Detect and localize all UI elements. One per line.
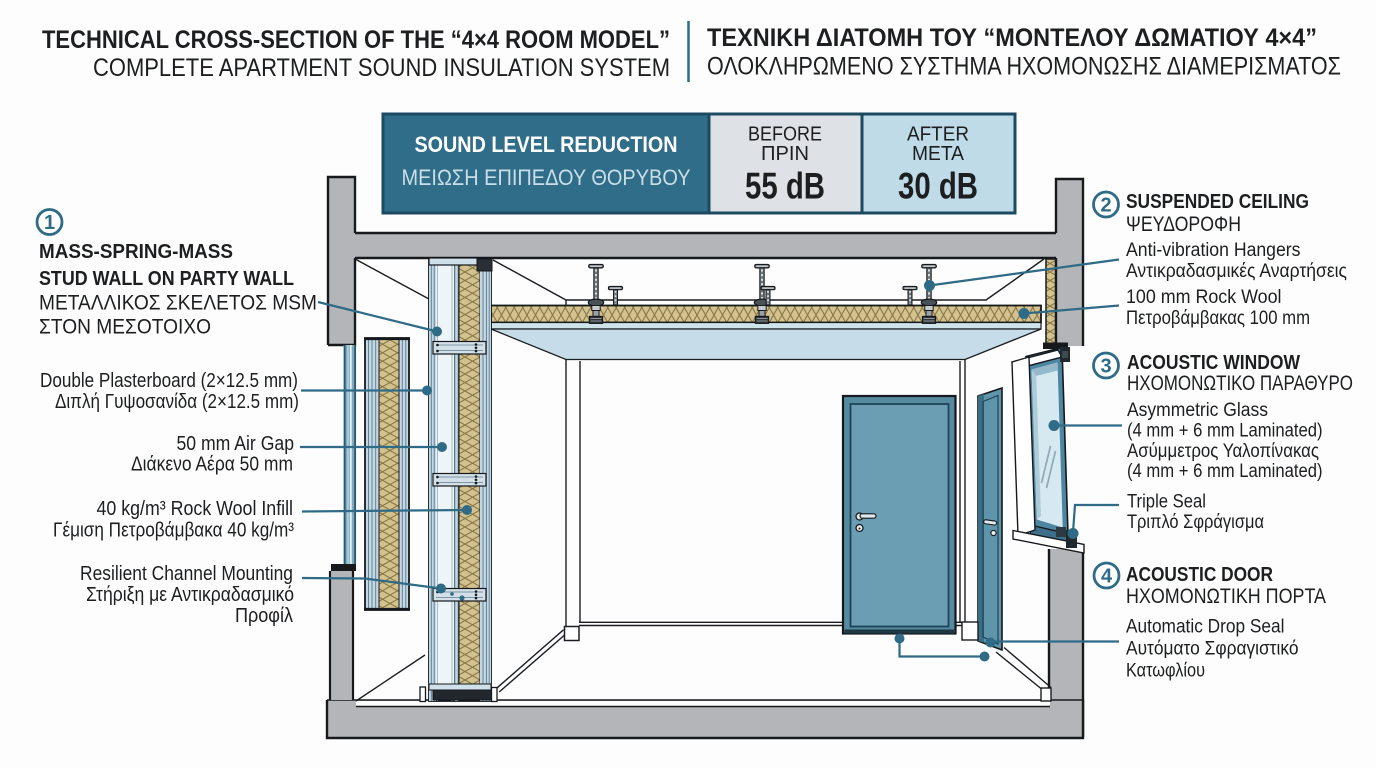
svg-text:4: 4 (1101, 566, 1113, 588)
svg-text:Προφίλ: Προφίλ (235, 605, 293, 627)
svg-text:ACOUSTIC WINDOW: ACOUSTIC WINDOW (1127, 352, 1300, 374)
svg-text:50 mm Air Gap: 50 mm Air Gap (177, 433, 295, 455)
svg-text:40 kg/m³ Rock Wool Infill: 40 kg/m³ Rock Wool Infill (97, 498, 294, 520)
svg-text:ΨΕΥΔΟΡΟΦΗ: ΨΕΥΔΟΡΟΦΗ (1126, 213, 1241, 236)
svg-text:2: 2 (1100, 195, 1111, 217)
svg-text:STUD WALL ON PARTY WALL: STUD WALL ON PARTY WALL (39, 268, 294, 290)
svg-text:Στήριξη με Αντικραδασμικό: Στήριξη με Αντικραδασμικό (86, 584, 294, 606)
svg-text:100 mm Rock Wool: 100 mm Rock Wool (1126, 287, 1282, 308)
svg-text:COMPLETE APARTMENT SOUND INSUL: COMPLETE APARTMENT SOUND INSULATION SYST… (93, 54, 670, 82)
svg-text:Γέμιση Πετροβάμβακα 40 kg/m³: Γέμιση Πετροβάμβακα 40 kg/m³ (53, 520, 294, 542)
svg-text:ΠΡΙΝ: ΠΡΙΝ (761, 143, 809, 165)
svg-text:1: 1 (44, 212, 55, 234)
svg-text:30 dB: 30 dB (898, 166, 978, 207)
svg-text:Πετροβάμβακας 100 mm: Πετροβάμβακας 100 mm (1126, 308, 1310, 329)
svg-text:SUSPENDED CEILING: SUSPENDED CEILING (1126, 191, 1309, 213)
svg-text:ΣΤΟΝ ΜΕΣΟΤΟΙΧΟ: ΣΤΟΝ ΜΕΣΟΤΟΙΧΟ (39, 316, 211, 339)
svg-text:ΤΕΧΝΙΚΗ ΔΙΑΤΟΜΗ ΤΟΥ “ΜΟΝΤΕΛΟΥ: ΤΕΧΝΙΚΗ ΔΙΑΤΟΜΗ ΤΟΥ “ΜΟΝΤΕΛΟΥ ΔΩΜΑΤΙΟΥ 4… (707, 24, 1317, 52)
svg-text:3: 3 (1100, 356, 1111, 378)
svg-text:SOUND LEVEL REDUCTION: SOUND LEVEL REDUCTION (415, 132, 678, 157)
svg-text:Διπλή Γυψοσανίδα (2×12.5 mm): Διπλή Γυψοσανίδα (2×12.5 mm) (55, 391, 299, 413)
svg-text:Ασύμμετρος Υαλοπίνακας: Ασύμμετρος Υαλοπίνακας (1127, 441, 1319, 462)
svg-text:Κατωφλίου: Κατωφλίου (1126, 661, 1205, 682)
svg-text:ΜΕΤΑ: ΜΕΤΑ (912, 143, 965, 165)
svg-text:(4 mm + 6 mm Laminated): (4 mm + 6 mm Laminated) (1127, 421, 1323, 442)
svg-text:Διάκενο Αέρα 50 mm: Διάκενο Αέρα 50 mm (131, 454, 293, 476)
svg-text:ACOUSTIC DOOR: ACOUSTIC DOOR (1126, 564, 1273, 586)
svg-text:TECHNICAL CROSS-SECTION OF THE: TECHNICAL CROSS-SECTION OF THE “4×4 ROOM… (42, 26, 670, 54)
svg-text:ΜΕΤΑΛΛΙΚΟΣ ΣΚΕΛΕΤΟΣ MSM: ΜΕΤΑΛΛΙΚΟΣ ΣΚΕΛΕΤΟΣ MSM (39, 292, 317, 315)
svg-text:Αντικραδασμικές Αναρτήσεις: Αντικραδασμικές Αναρτήσεις (1126, 261, 1347, 282)
svg-text:Resilient Channel Mounting: Resilient Channel Mounting (80, 563, 293, 585)
svg-text:Automatic Drop Seal: Automatic Drop Seal (1126, 617, 1285, 638)
svg-text:MASS-SPRING-MASS: MASS-SPRING-MASS (39, 241, 233, 263)
svg-text:Αυτόματο Σφραγιστικό: Αυτόματο Σφραγιστικό (1126, 639, 1299, 660)
svg-text:Τριπλό Σφράγισμα: Τριπλό Σφράγισμα (1127, 512, 1264, 533)
svg-text:Triple Seal: Triple Seal (1127, 492, 1206, 513)
svg-text:Double Plasterboard (2×12.5 mm: Double Plasterboard (2×12.5 mm) (40, 370, 298, 392)
svg-text:(4 mm + 6 mm Laminated): (4 mm + 6 mm Laminated) (1127, 461, 1323, 482)
svg-text:ΟΛΟΚΛΗΡΩΜΕΝΟ ΣΥΣΤΗΜΑ ΗΧΟΜΟΝΩΣΗ: ΟΛΟΚΛΗΡΩΜΕΝΟ ΣΥΣΤΗΜΑ ΗΧΟΜΟΝΩΣΗΣ ΔΙΑΜΕΡΙΣ… (707, 53, 1341, 81)
svg-text:ΗΧΟΜΟΝΩΤΙΚΗ ΠΟΡΤΑ: ΗΧΟΜΟΝΩΤΙΚΗ ΠΟΡΤΑ (1126, 585, 1326, 608)
svg-text:Asymmetric Glass: Asymmetric Glass (1127, 400, 1268, 421)
svg-text:ΜΕΙΩΣΗ ΕΠΙΠΕΔΟΥ ΘΟΡΥΒΟΥ: ΜΕΙΩΣΗ ΕΠΙΠΕΔΟΥ ΘΟΡΥΒΟΥ (402, 165, 691, 190)
svg-text:55 dB: 55 dB (745, 166, 825, 207)
svg-text:ΗΧΟΜΟΝΩΤΙΚΟ ΠΑΡΑΘΥΡΟ: ΗΧΟΜΟΝΩΤΙΚΟ ΠΑΡΑΘΥΡΟ (1127, 372, 1353, 395)
svg-text:Anti-vibration Hangers: Anti-vibration Hangers (1126, 240, 1301, 261)
